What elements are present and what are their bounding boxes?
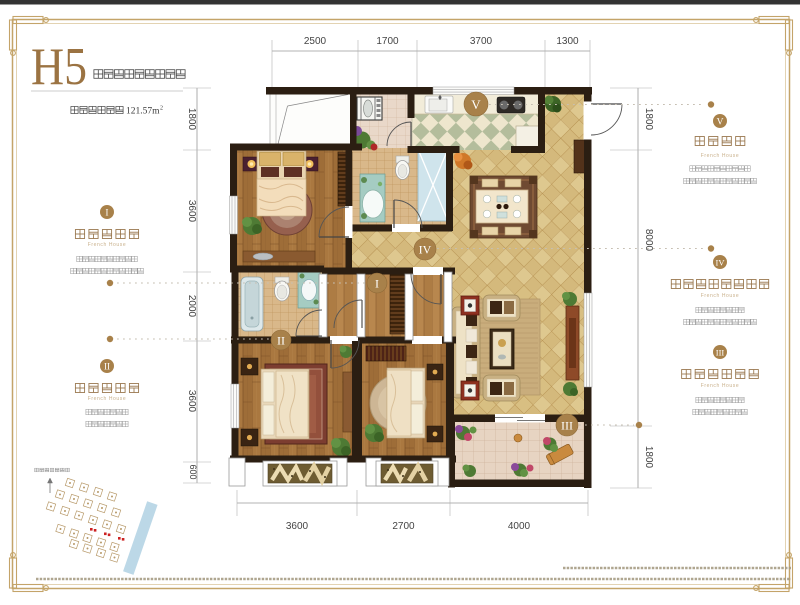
- svg-text:2700: 2700: [392, 521, 415, 532]
- svg-text:3600: 3600: [186, 390, 197, 413]
- svg-text:IV: IV: [419, 243, 432, 257]
- svg-text:V: V: [471, 97, 481, 112]
- svg-text:1300: 1300: [556, 36, 579, 47]
- svg-text:H5: H5: [31, 38, 87, 96]
- svg-text:I: I: [375, 277, 379, 291]
- svg-text:French House: French House: [88, 396, 127, 402]
- svg-text:3600: 3600: [286, 521, 309, 532]
- svg-text:4000: 4000: [508, 521, 531, 532]
- svg-text:2500: 2500: [304, 36, 327, 47]
- svg-text:II: II: [104, 362, 110, 372]
- svg-text:3700: 3700: [470, 36, 493, 47]
- svg-text:III: III: [716, 348, 725, 358]
- svg-text:1800: 1800: [643, 108, 654, 131]
- svg-text:V: V: [717, 118, 724, 128]
- svg-text:600: 600: [188, 464, 198, 479]
- svg-text:IV: IV: [716, 258, 726, 268]
- svg-text:2000: 2000: [186, 295, 197, 318]
- svg-text:French House: French House: [701, 383, 740, 389]
- svg-text:3600: 3600: [186, 200, 197, 223]
- svg-text:121.57m: 121.57m: [126, 107, 160, 117]
- svg-text:French House: French House: [701, 153, 740, 159]
- svg-text:III: III: [561, 419, 573, 433]
- svg-text:French House: French House: [701, 293, 740, 299]
- svg-text:II: II: [277, 334, 285, 348]
- svg-text:2: 2: [160, 106, 163, 112]
- svg-text:1800: 1800: [643, 446, 654, 469]
- svg-text:1700: 1700: [376, 36, 399, 47]
- svg-text:French House: French House: [88, 242, 127, 248]
- svg-text:I: I: [105, 209, 108, 219]
- svg-text:1800: 1800: [186, 108, 197, 131]
